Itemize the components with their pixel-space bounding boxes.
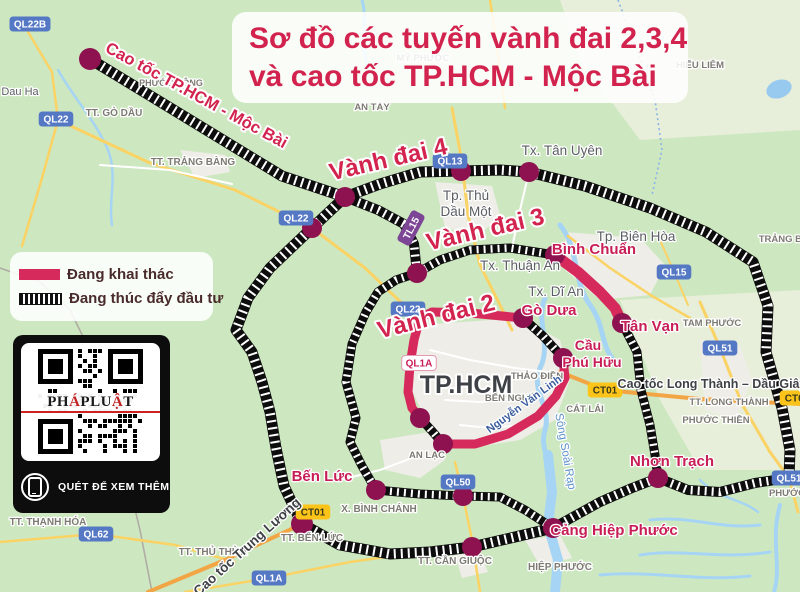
legend-label: Đang khai thác [67,266,174,283]
map-label: TT. GÒ DẦU [86,106,143,119]
junction-dot [407,263,427,283]
map-label: TRẢNG BOM [759,233,800,245]
map-label: Nhơn Trạch [630,453,714,470]
road-shield-ql50: QL50 [441,475,476,490]
junction-dot [519,162,539,182]
map-label: Cảng Hiệp Phước [550,522,677,539]
map-label: Tp. Thủ [443,188,489,203]
map-label: Cao tốc Long Thành – Dầu Giây [618,377,800,391]
svg-text:QL15: QL15 [661,268,686,279]
road-shield-ql15: QL15 [657,265,692,280]
svg-text:QL22B: QL22B [14,20,46,31]
map-label: Bình Chuẩn [552,241,636,258]
legend-swatch-solid [19,269,60,280]
map-label: TT. BẾN LỨC [281,531,343,544]
map-label: Gò Dưa [521,302,577,319]
svg-text:QL1A: QL1A [406,359,433,370]
svg-text:QL50: QL50 [445,478,470,489]
road-shield-ql22: QL22 [39,112,74,127]
map-label: TAM PHƯỚC [683,317,742,329]
qr-brand-logo: PHÁPLUẬT [21,394,160,413]
map-label: CÁT LÁI [566,404,603,415]
qr-card: PHÁPLUẬT QUÉT ĐỂ XEM THÊM [13,335,170,513]
road-shield-ql22b: QL22B [10,17,51,32]
road-shield-ql22: QL22 [279,211,314,226]
title-line-1: Sơ đồ các tuyến vành đai 2,3,4 [249,20,688,58]
map-label: PHƯỚC THIỀN [682,414,749,426]
road-shield-ql62: QL62 [79,527,114,542]
road-shield-ql1a: QL1A [402,356,437,371]
svg-text:CT01: CT01 [301,508,326,519]
svg-text:QL22: QL22 [43,115,68,126]
phone-icon [21,473,49,501]
road-shield-ct01: CT01 [780,391,800,406]
qr-footer: QUÉT ĐỂ XEM THÊM [13,461,170,513]
legend-swatch-striped [19,293,62,305]
map-label: PHƯỚC AN [769,487,800,499]
map-label: Tx. Dĩ An [528,284,584,299]
svg-text:QL51: QL51 [776,474,800,485]
title-box: Sơ đồ các tuyến vành đai 2,3,4 và cao tố… [232,12,688,103]
map-label: Tx. Thuận An [480,258,560,273]
map-label: X. BÌNH CHÁNH [341,502,417,515]
map-label: Tx. Tân Uyên [522,143,603,158]
svg-text:CT01: CT01 [785,394,800,405]
road-shield-ql51: QL51 [703,341,738,356]
svg-text:CT01: CT01 [593,386,618,397]
legend: Đang khai thác Đang thúc đẩy đầu tư [10,252,213,321]
junction-dot [79,48,101,70]
map-label: Bến Lức [292,468,353,485]
legend-item-operating: Đang khai thác [19,266,213,283]
map-label: AN LẠC [409,450,445,461]
infographic-canvas: QL22BQL22QL22QL22QL13QL15QL51QL51QL50QL6… [0,0,800,592]
map-label: Dau Ha [1,86,39,98]
map-label: TT. LONG THÀNH [689,397,768,408]
map-label: HIỆP PHƯỚC [528,560,592,573]
map-label: Cầu [575,337,601,353]
junction-dot [366,480,386,500]
legend-item-investment: Đang thúc đẩy đầu tư [19,290,213,307]
legend-label: Đang thúc đẩy đầu tư [69,290,223,307]
road-shield-ql51: QL51 [772,471,800,486]
map-label: Phú Hữu [562,354,621,370]
junction-dot [410,408,430,428]
map-label: TT. TRẢNG BÀNG [151,155,236,168]
map-label: TT. CẦN GIUỘC [418,554,492,567]
junction-dot [462,537,482,557]
map-label: Tân Vạn [621,318,679,335]
svg-text:QL51: QL51 [707,344,732,355]
title-line-2: và cao tốc TP.HCM - Mộc Bài [249,58,688,96]
road-shield-ql1a: QL1A [252,571,287,586]
map-label: TT. THẠNH HÓA [10,515,87,528]
svg-text:QL62: QL62 [83,530,108,541]
qr-panel: PHÁPLUẬT [21,343,160,461]
junction-dot [335,187,355,207]
svg-text:QL22: QL22 [283,214,308,225]
svg-text:QL1A: QL1A [256,574,283,585]
junction-dot [648,468,668,488]
qr-caption: QUÉT ĐỂ XEM THÊM [58,481,169,493]
